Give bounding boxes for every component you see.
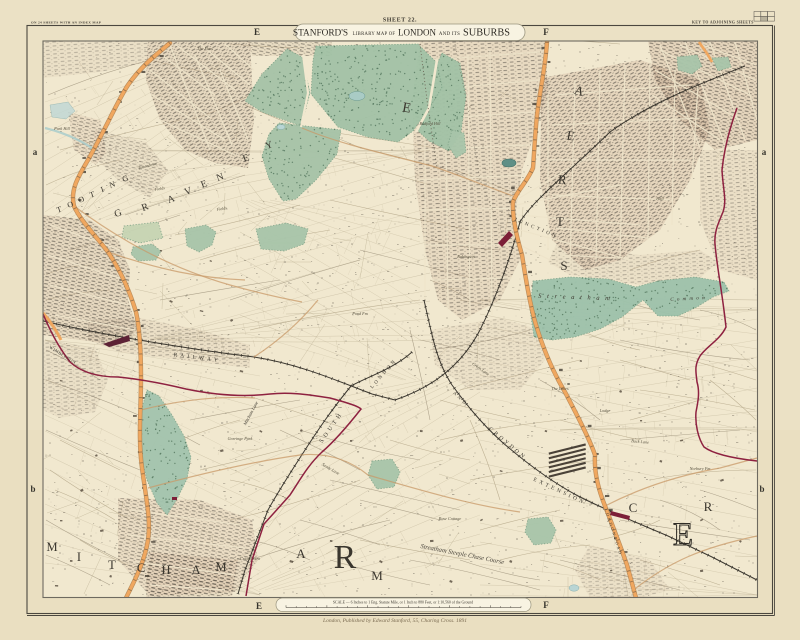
svg-text:A: A [296,546,306,561]
svg-text:KEY TO ADJOINING SHEETS: KEY TO ADJOINING SHEETS [692,21,754,25]
svg-text:C: C [629,500,638,515]
svg-text:SUBURBS: SUBURBS [463,28,510,39]
svg-text:T: T [556,214,564,229]
svg-text:E: E [673,517,693,553]
svg-text:C: C [137,561,145,575]
svg-text:London, Published by Edward St: London, Published by Edward Stanford, 55… [322,617,467,624]
svg-text:E: E [254,27,260,37]
svg-text:Hall: Hall [655,196,664,201]
svg-text:R: R [704,499,713,514]
svg-text:M: M [46,540,57,554]
svg-text:E: E [256,601,262,611]
svg-text:b: b [30,484,35,494]
svg-text:Pond Fm: Pond Fm [351,311,367,316]
svg-text:Norbury Fm: Norbury Fm [689,466,711,471]
svg-text:M: M [371,568,383,583]
svg-text:ON 24 SHEETS WITH AN INDEX MAP: ON 24 SHEETS WITH AN INDEX MAP [31,21,101,25]
svg-text:Rose Cottage: Rose Cottage [438,516,462,521]
svg-text:Lodge: Lodge [599,408,611,413]
svg-text:H: H [161,563,170,577]
svg-text:b: b [759,484,764,494]
svg-text:Cricket Grn: Cricket Grn [240,556,260,561]
svg-text:LONDON: LONDON [398,28,436,38]
svg-text:Gorringe Park: Gorringe Park [228,436,253,441]
svg-text:R: R [334,539,357,576]
svg-text:SHEET 22.: SHEET 22. [383,18,417,24]
svg-text:F: F [543,27,549,37]
svg-text:a: a [762,147,767,157]
svg-text:Park Hill: Park Hill [53,126,71,131]
svg-text:The Limes: The Limes [551,386,569,391]
svg-text:The Elms: The Elms [197,46,213,51]
svg-text:I: I [77,550,81,564]
svg-text:Bedford Hill: Bedford Hill [420,121,442,126]
svg-text:M: M [215,560,226,574]
svg-text:T: T [108,558,116,572]
svg-text:LIBRARY MAP OF: LIBRARY MAP OF [353,32,396,37]
svg-text:S: S [560,258,567,273]
svg-text:STANFORD'S: STANFORD'S [293,29,348,39]
svg-text:R: R [557,172,567,188]
svg-text:a: a [33,147,38,157]
svg-text:Babington: Babington [457,254,474,259]
svg-text:F: F [543,600,549,610]
svg-text:A: A [191,563,200,577]
svg-text:AND ITS: AND ITS [439,32,460,37]
